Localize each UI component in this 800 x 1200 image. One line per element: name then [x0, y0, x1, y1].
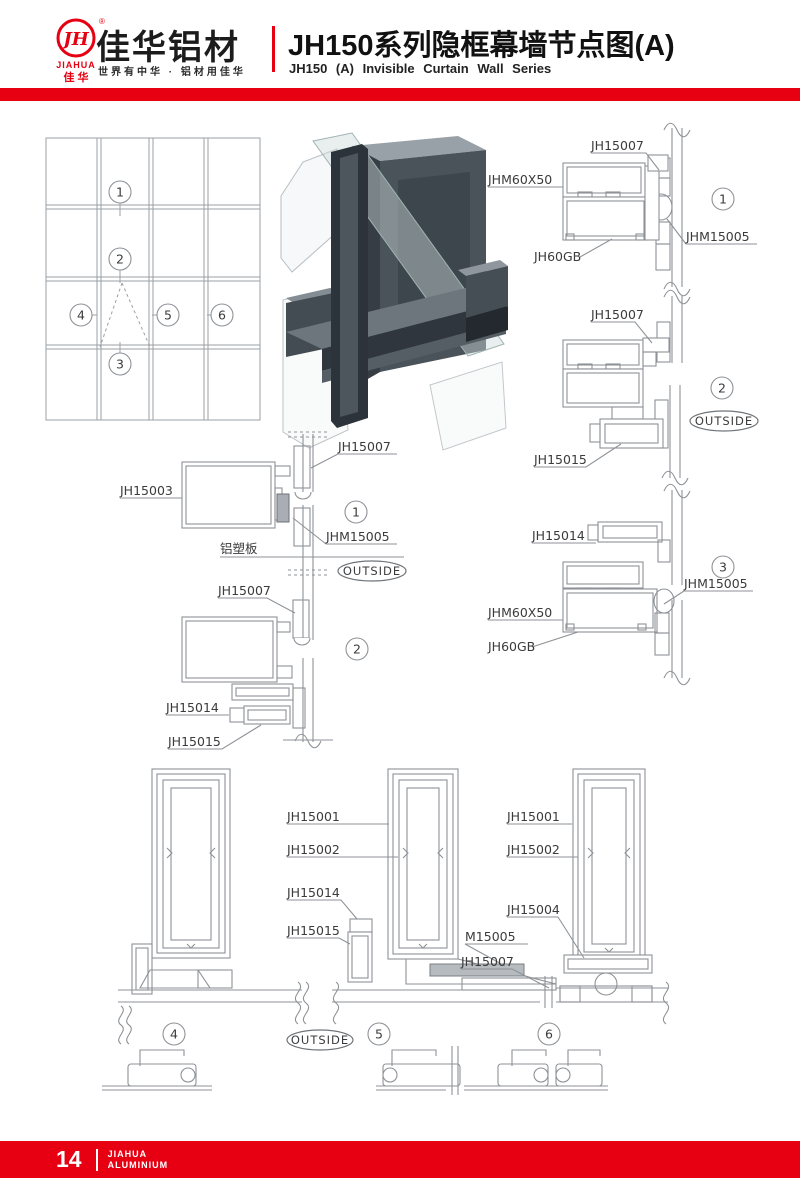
sealant-dome	[595, 973, 617, 995]
svg-text:1: 1	[352, 505, 360, 520]
footer-brand-top: JIAHUA	[108, 1149, 169, 1160]
elevation-callout-1: 1	[109, 181, 131, 203]
label-jhm60x50: JHM60X50	[487, 605, 552, 620]
svg-text:5: 5	[164, 308, 172, 323]
label-jh15001: JH15001	[506, 809, 560, 824]
frame-section-5	[332, 769, 556, 1024]
footer-divider	[96, 1149, 98, 1171]
detail-l2-callout: 2	[346, 638, 368, 660]
label-jh15014: JH15014	[286, 885, 340, 900]
header-accent-bar	[0, 88, 800, 101]
svg-text:4: 4	[77, 308, 85, 323]
logo-monogram: JH	[60, 29, 90, 50]
svg-text:1: 1	[116, 185, 124, 200]
detail-l1-callout: 1	[345, 501, 367, 523]
panel-profile	[182, 617, 277, 682]
label-jh15014: JH15014	[531, 528, 585, 543]
vent-symbol	[100, 283, 122, 347]
label-acp: 铝塑板	[220, 541, 258, 556]
svg-text:2: 2	[718, 381, 726, 396]
svg-text:2: 2	[116, 252, 124, 267]
svg-text:6: 6	[218, 308, 226, 323]
drawing-canvas: 1 2 3 4 5 6	[0, 0, 800, 1200]
jh15007-profile	[643, 338, 669, 352]
jh15014-clip	[350, 919, 372, 932]
page-subtitle: JH150 (A) Invisible Curtain Wall Series	[289, 61, 551, 76]
label-m15005: M15005	[465, 929, 516, 944]
detail-right-2: JH15007 JH15015 2 OUTSIDE	[533, 290, 758, 485]
elevation-callout-3: 3	[109, 353, 131, 375]
label-jh15007: JH15007	[590, 138, 644, 153]
outside-label: OUTSIDE	[343, 564, 401, 578]
glass-pane-upper-left	[281, 149, 337, 272]
break-mark	[664, 123, 690, 137]
label-jh60gb: JH60GB	[487, 639, 535, 654]
elevation-callout-2: 2	[109, 248, 131, 270]
elevation-diagram: 1 2 3 4 5 6	[46, 138, 260, 420]
label-jhm15005: JHM15005	[325, 529, 390, 544]
label-jh15015: JH15015	[286, 923, 340, 938]
bottom-callout-4: 4	[163, 1023, 185, 1045]
jh15003-profile	[182, 462, 275, 528]
logo-text-en: JIAHUA	[56, 60, 96, 70]
label-jh15015: JH15015	[167, 734, 221, 749]
outside-label: OUTSIDE	[291, 1033, 349, 1047]
footer-brand-bottom: ALUMINIUM	[108, 1160, 169, 1171]
page-title: JH150系列隐框幕墙节点图(A)	[288, 22, 675, 64]
label-jhm15005: JHM15005	[685, 229, 750, 244]
label-jh15003: JH15003	[119, 483, 173, 498]
elevation-callout-5: 5	[157, 304, 179, 326]
jh15004-adapter	[564, 955, 652, 973]
label-jh15004: JH15004	[506, 902, 560, 917]
footer-bar: 14 JIAHUA ALUMINIUM	[0, 1141, 800, 1178]
label-jh15002: JH15002	[286, 842, 340, 857]
jhm15005-insert	[277, 494, 289, 522]
svg-text:5: 5	[375, 1027, 383, 1042]
header-divider	[272, 26, 275, 72]
svg-text:3: 3	[116, 357, 124, 372]
jh15015-profile	[600, 419, 663, 448]
jh15014-profile	[598, 522, 662, 542]
svg-text:1: 1	[719, 192, 727, 207]
company-tagline: 世界有中华 · 铝材用佳华	[98, 63, 246, 78]
detail-right-1: JH15007 JHM60X50 JH60GB JHM15005 1	[487, 123, 757, 296]
svg-text:3: 3	[719, 560, 727, 575]
header: JH ® JIAHUA 佳 华 佳华铝材 世界有中华 · 铝材用佳华 JH150…	[0, 0, 800, 88]
svg-text:6: 6	[545, 1027, 553, 1042]
label-jh15002: JH15002	[506, 842, 560, 857]
svg-text:2: 2	[353, 642, 361, 657]
label-jh15007: JH15007	[590, 307, 644, 322]
detail3-callout: 3	[712, 556, 734, 578]
label-jh15001: JH15001	[286, 809, 340, 824]
frame-section-6	[556, 769, 669, 1024]
jh15015-profile	[244, 706, 290, 724]
elevation-callout-4: 4	[70, 304, 92, 326]
footer-brand: JIAHUA ALUMINIUM	[108, 1149, 169, 1171]
label-jh15007: JH15007	[217, 583, 271, 598]
svg-text:4: 4	[170, 1027, 178, 1042]
label-jhm60x50: JHM60X50	[487, 172, 552, 187]
bottom-callout-5: 5	[368, 1023, 390, 1045]
page-number: 14	[56, 1146, 82, 1173]
label-jh60gb: JH60GB	[533, 249, 581, 264]
label-jh15014: JH15014	[165, 700, 219, 715]
elevation-callout-6: 6	[211, 304, 233, 326]
detail-right-3: JH15014 JHM15005 JHM60X50 JH60GB 3	[487, 484, 753, 685]
label-jh15007: JH15007	[337, 439, 391, 454]
label-jh15015: JH15015	[533, 452, 587, 467]
jh15014-clip	[230, 708, 244, 722]
label-jh15007: JH15007	[460, 954, 514, 969]
detail-left-1: JH15007 JH15003 JHM15005 铝塑板 1 OUTSIDE	[119, 432, 406, 640]
render-3d-profile	[281, 133, 508, 450]
frame-section-4	[118, 769, 309, 1044]
glass-pane-lower-right	[430, 362, 506, 450]
detail2-callout: 2	[711, 377, 733, 399]
logo-text-cn: 佳 华	[63, 70, 88, 84]
bottom-sections: JH15001 JH15002 JH15014 JH15015 M15005 J…	[102, 769, 669, 1095]
detail1-callout: 1	[712, 188, 734, 210]
label-jhm15005: JHM15005	[683, 576, 748, 591]
sill-detail-row	[102, 1046, 608, 1095]
company-name: 佳华铝材	[96, 20, 240, 69]
detail-left-2: JH15007 JH15014 JH15015 2	[165, 583, 368, 749]
outside-label: OUTSIDE	[695, 414, 753, 428]
bottom-callout-6: 6	[538, 1023, 560, 1045]
